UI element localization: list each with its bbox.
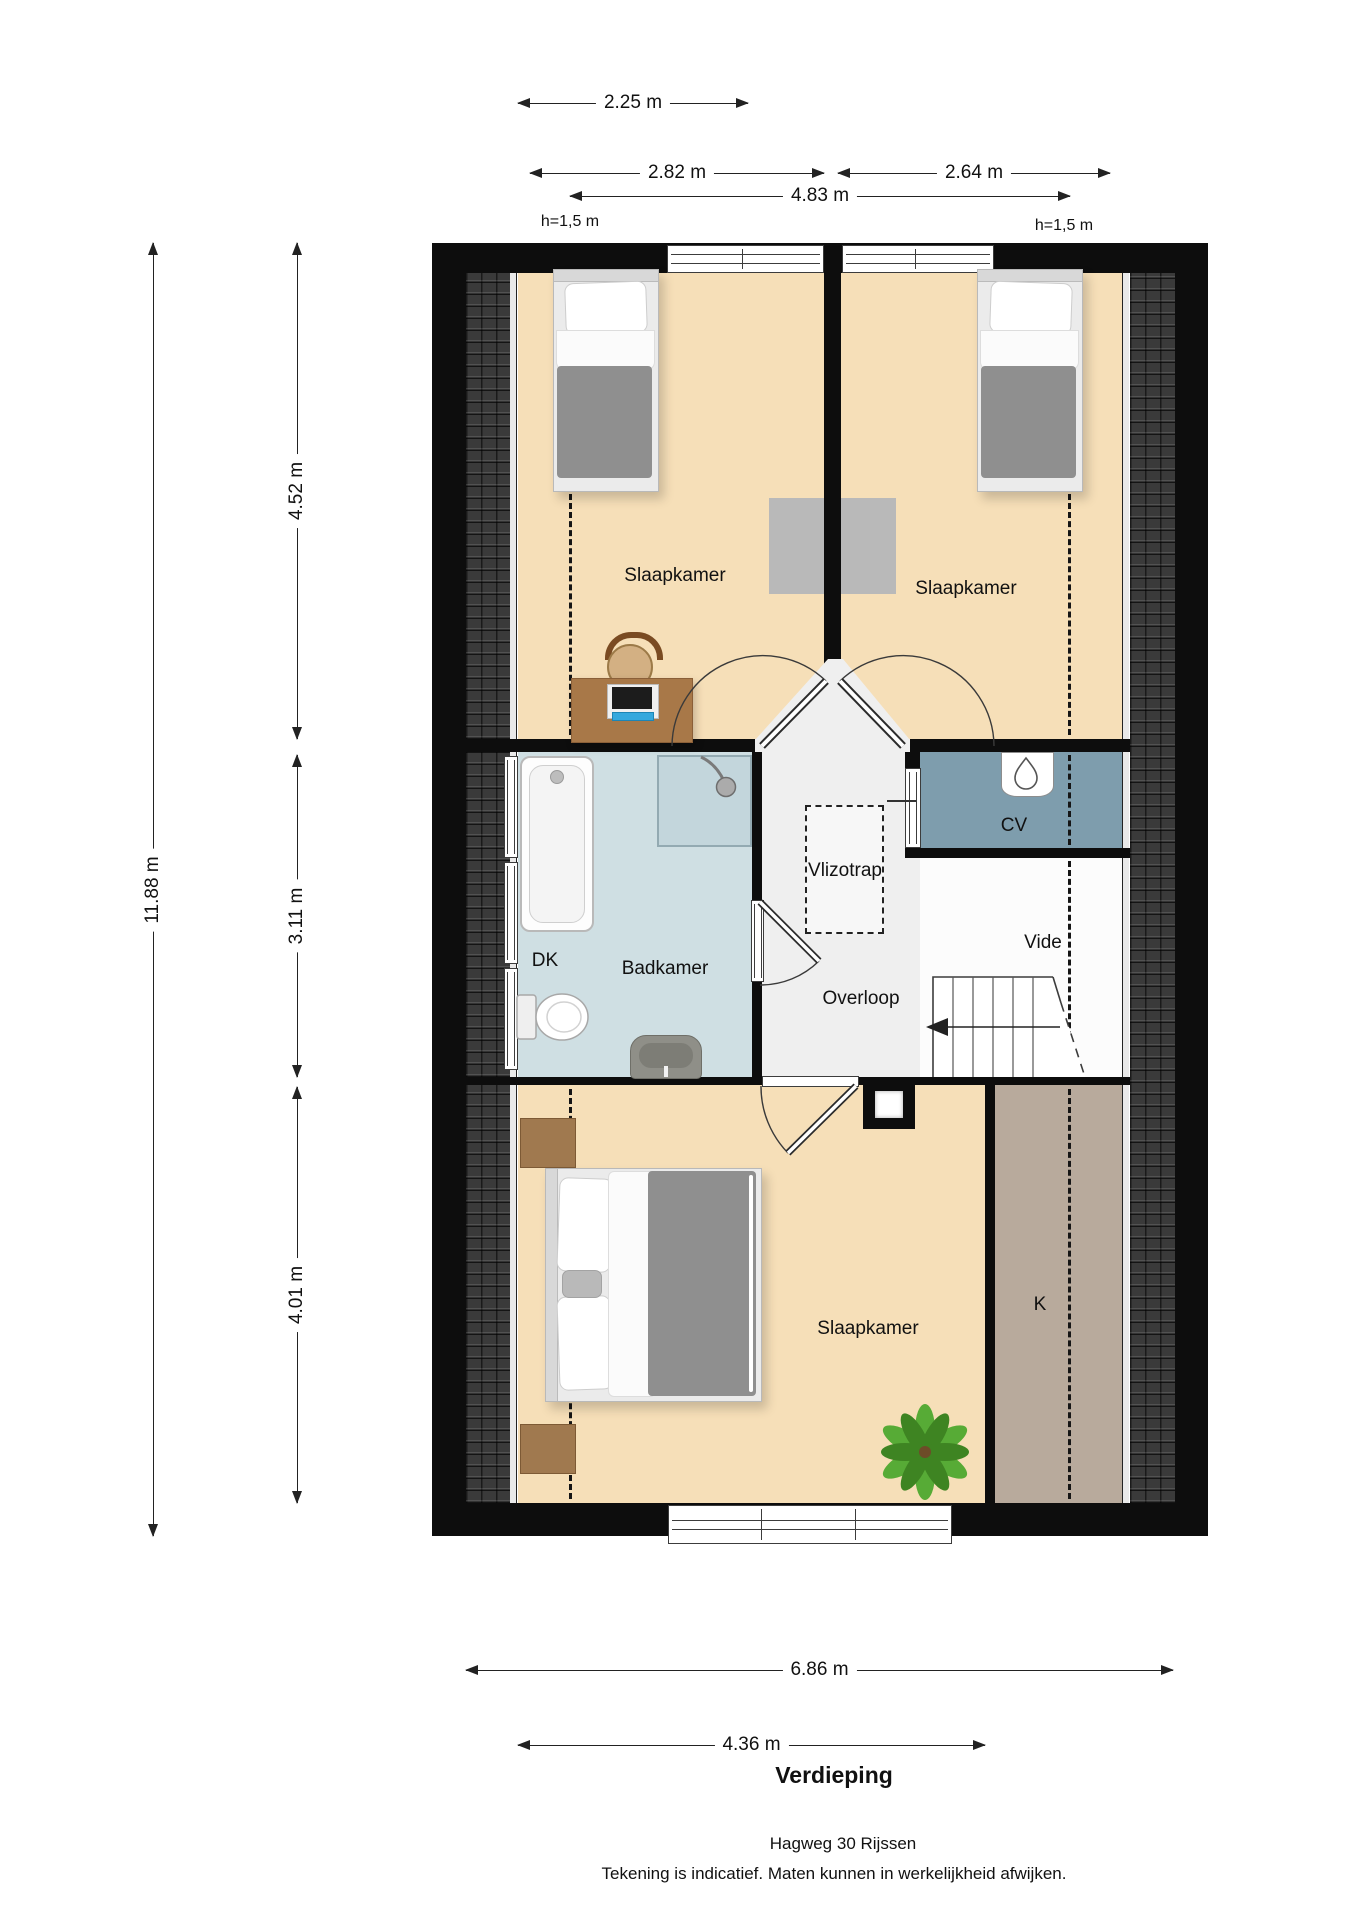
floor-vide	[920, 858, 1122, 1077]
cabinet-right-of-divider	[841, 498, 896, 594]
wall-cv-bottom	[905, 848, 1130, 858]
plan-disclaimer: Tekening is indicatief. Maten kunnen in …	[602, 1864, 1067, 1884]
nightstand-top	[520, 1118, 576, 1168]
door-opening-cv	[905, 768, 921, 848]
window-mullion	[915, 249, 916, 269]
arrow-left-icon	[837, 168, 850, 178]
door-frame	[909, 772, 917, 844]
dim-left-4-01: 4.01 m	[297, 1087, 298, 1503]
label-badkamer: Badkamer	[622, 958, 709, 980]
label-cv: CV	[1001, 815, 1027, 837]
pillow	[556, 1177, 613, 1273]
arrow-right-icon	[973, 1740, 986, 1750]
bed-blanket	[557, 366, 652, 478]
knee-line-right-vide	[1068, 861, 1071, 1073]
bed-single-right	[977, 269, 1083, 492]
plan-title: Verdieping	[775, 1762, 893, 1789]
label-vlizotrap: Vlizotrap	[808, 860, 882, 882]
label-slaapkamer-left: Slaapkamer	[624, 565, 725, 587]
window-mullion	[855, 1509, 856, 1540]
window-mullion	[761, 1509, 762, 1540]
dim-left-4-52: 4.52 m	[297, 243, 298, 739]
dim-left-3-11: 3.11 m	[297, 755, 298, 1077]
dim-top-2-25: 2.25 m	[518, 103, 748, 104]
label-overloop: Overloop	[822, 988, 899, 1010]
sink	[630, 1035, 702, 1079]
door-frame	[754, 904, 762, 978]
pillow	[989, 281, 1073, 336]
knee-line-right-cv	[1068, 755, 1071, 845]
arrow-down-icon	[292, 727, 302, 740]
bed-blanket	[648, 1171, 756, 1396]
label-k: K	[1034, 1294, 1047, 1316]
dim-top-2-82: 2.82 m	[530, 173, 824, 174]
arrow-down-icon	[292, 1065, 302, 1078]
door-opening-badkamer	[751, 900, 764, 982]
nightstand-bottom	[520, 1424, 576, 1474]
bed-double	[545, 1168, 762, 1402]
label-vide: Vide	[1024, 932, 1062, 954]
floor-closet-k	[995, 1085, 1122, 1503]
window-bedroom-bottom	[668, 1505, 952, 1544]
roof-strip-left-bottom	[466, 1085, 510, 1503]
blanket-piping	[749, 1175, 753, 1392]
wall-zone2-a	[432, 1077, 762, 1085]
arrow-up-icon	[292, 242, 302, 255]
cabinet-left-of-divider	[769, 498, 824, 594]
bed-single-left	[553, 269, 659, 492]
arrow-right-icon	[1098, 168, 1111, 178]
window-mullion	[742, 249, 743, 269]
bed-blanket	[981, 366, 1076, 478]
arrow-down-icon	[292, 1491, 302, 1504]
arrow-left-icon	[517, 1740, 530, 1750]
chimney-duct	[863, 1080, 915, 1129]
shower-tray	[657, 755, 752, 847]
dim-left-11-88: 11.88 m	[153, 243, 154, 1536]
pillow	[564, 281, 648, 336]
window-dk-strip-2	[504, 862, 518, 964]
chimney-duct-inner	[875, 1091, 903, 1118]
label-dk: DK	[532, 950, 558, 972]
window-glazing	[507, 866, 515, 960]
arrow-left-icon	[517, 98, 530, 108]
arrow-left-icon	[465, 1665, 478, 1675]
window-dk-strip-3	[504, 968, 518, 1070]
wall-left	[432, 243, 466, 1536]
window-glazing	[507, 760, 515, 854]
door-opening-bedroom-bottom	[762, 1076, 859, 1087]
arrow-right-icon	[812, 168, 825, 178]
plan-address: Hagweg 30 Rijssen	[770, 1834, 916, 1854]
bed-sheet	[556, 330, 655, 370]
label-slaapkamer-bottom: Slaapkamer	[817, 1318, 918, 1340]
window-bedroom-right	[842, 245, 994, 273]
sink-tap-icon	[664, 1066, 668, 1077]
wall-right	[1175, 243, 1208, 1536]
wall-bedrooms-divider	[824, 273, 841, 676]
dim-top-4-83: 4.83 m	[570, 196, 1070, 197]
arrow-left-icon	[529, 168, 542, 178]
roof-strip-right	[1130, 273, 1175, 1503]
floorplan-page: Slaapkamer Slaapkamer Slaapkamer Badkame…	[0, 0, 1358, 1920]
arrow-down-icon	[148, 1524, 158, 1537]
desk-keyboard	[612, 712, 654, 721]
bathtub	[520, 756, 594, 932]
window-glazing	[846, 254, 990, 264]
label-height-left: h=1,5 m	[541, 213, 599, 231]
arrow-right-icon	[1161, 1665, 1174, 1675]
wall-badkamer-right-lower	[752, 980, 762, 1077]
bed-sheet	[980, 330, 1079, 370]
label-height-right: h=1,5 m	[1035, 217, 1093, 235]
pillow	[556, 1295, 613, 1391]
knee-line-right-bottom	[1068, 1089, 1071, 1499]
cv-boiler	[1001, 752, 1054, 797]
desk-monitor-screen	[612, 687, 652, 709]
window-dk-strip-1	[504, 756, 518, 858]
gutter-right	[1122, 273, 1129, 1503]
arrow-right-icon	[736, 98, 749, 108]
wall-closet-k	[985, 1085, 995, 1503]
arrow-right-icon	[1058, 191, 1071, 201]
dim-top-2-64: 2.64 m	[838, 173, 1110, 174]
dim-bottom-6-86: 6.86 m	[466, 1670, 1173, 1671]
wall-zone1-b	[910, 739, 1130, 752]
window-glazing	[672, 1520, 948, 1530]
wall-badkamer-right-upper	[752, 752, 762, 900]
bathtub-faucet-icon	[550, 770, 564, 784]
gutter-left-bottom	[510, 1085, 517, 1503]
dim-bottom-4-36: 4.36 m	[518, 1745, 985, 1746]
window-bedroom-left	[667, 245, 824, 273]
window-glazing	[507, 972, 515, 1066]
label-slaapkamer-right: Slaapkamer	[915, 578, 1016, 600]
window-glazing	[671, 254, 820, 264]
arrow-up-icon	[292, 754, 302, 767]
arrow-up-icon	[292, 1086, 302, 1099]
arrow-left-icon	[569, 191, 582, 201]
bathtub-basin	[529, 765, 585, 923]
arrow-up-icon	[148, 242, 158, 255]
roof-strip-left-top	[466, 273, 510, 739]
pillow-small	[562, 1270, 602, 1298]
gutter-left-top	[510, 273, 517, 739]
sink-basin	[639, 1043, 693, 1068]
